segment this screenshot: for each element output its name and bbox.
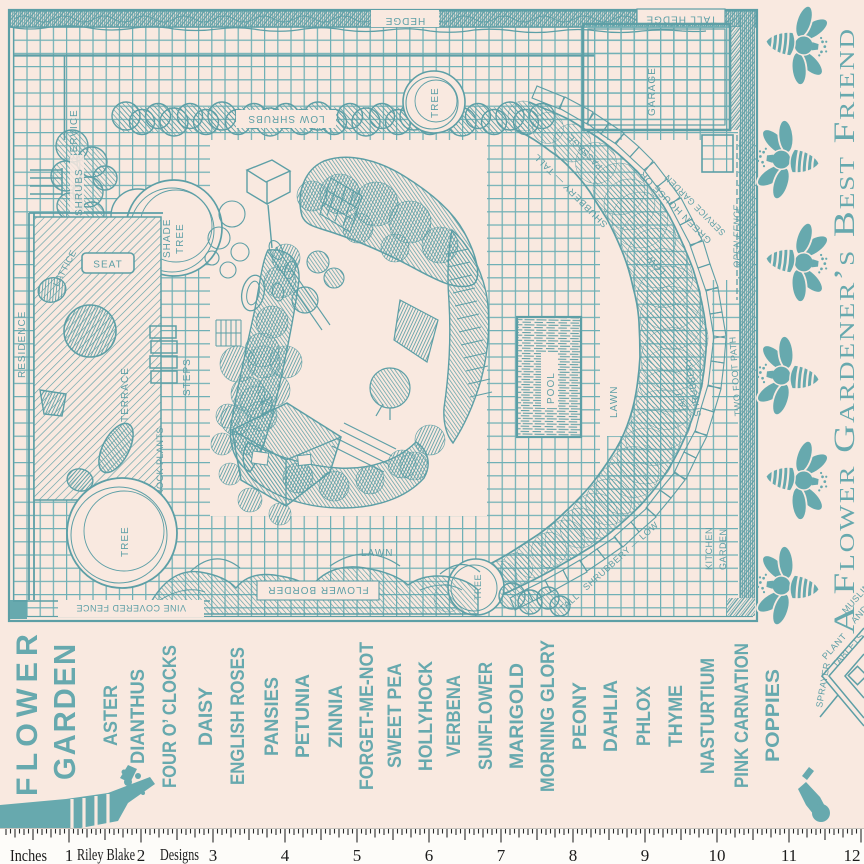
svg-text:SUNFLOWER: SUNFLOWER [476, 662, 497, 770]
svg-text:10: 10 [709, 846, 726, 864]
svg-text:PANSIES: PANSIES [262, 677, 283, 756]
svg-text:7: 7 [497, 846, 506, 864]
svg-text:VINE COVERED FENCE: VINE COVERED FENCE [76, 603, 186, 613]
svg-text:PEONY: PEONY [570, 682, 591, 750]
svg-text:MORNING GLORY: MORNING GLORY [538, 640, 559, 792]
svg-text:DAHLIA: DAHLIA [601, 680, 622, 752]
svg-text:LAWN: LAWN [609, 385, 620, 418]
svg-text:ROCK PLANTS: ROCK PLANTS [155, 427, 165, 496]
svg-text:ENGLISH ROSES: ENGLISH ROSES [228, 647, 249, 785]
svg-text:SEAT: SEAT [93, 260, 122, 271]
svg-text:VERBENA: VERBENA [444, 675, 465, 757]
svg-text:POPPIES: POPPIES [763, 669, 784, 762]
svg-text:8: 8 [569, 846, 578, 864]
svg-text:THYME: THYME [666, 685, 687, 747]
svg-text:FLOWER BORDER: FLOWER BORDER [267, 584, 368, 595]
svg-text:FORGET-ME-NOT: FORGET-ME-NOT [357, 642, 378, 790]
svg-text:1: 1 [65, 846, 74, 864]
svg-text:3: 3 [209, 846, 218, 864]
svg-text:SHRUBS: SHRUBS [74, 168, 85, 216]
svg-text:DAISY: DAISY [196, 687, 217, 746]
svg-text:PHLOX: PHLOX [634, 686, 655, 746]
svg-text:STEPS: STEPS [182, 358, 193, 396]
svg-text:DIANTHUS: DIANTHUS [128, 669, 149, 764]
svg-text:2: 2 [137, 846, 146, 864]
svg-text:4: 4 [281, 846, 290, 864]
svg-text:OPEN FENCE: OPEN FENCE [732, 204, 742, 268]
svg-text:TREE: TREE [430, 87, 441, 118]
svg-text:11: 11 [781, 846, 797, 864]
svg-text:9: 9 [641, 846, 650, 864]
svg-text:A Flower Gardener’s Best Frien: A Flower Gardener’s Best Friend [828, 27, 861, 634]
svg-text:GARAGE: GARAGE [647, 67, 658, 116]
svg-text:POOL: POOL [546, 372, 557, 404]
svg-text:PINK CARNATION: PINK CARNATION [732, 643, 753, 788]
svg-text:TREE: TREE [175, 223, 186, 254]
svg-text:ASTER: ASTER [101, 685, 122, 746]
svg-text:GARDEN: GARDEN [718, 528, 728, 570]
svg-text:PETUNIA: PETUNIA [293, 674, 314, 758]
svg-text:GARDEN: GARDEN [47, 642, 82, 780]
svg-text:HEDGE: HEDGE [385, 15, 426, 26]
svg-text:Designs: Designs [160, 845, 199, 864]
svg-text:ZINNIA: ZINNIA [326, 685, 347, 748]
svg-text:HOLLYHOCK: HOLLYHOCK [416, 661, 437, 771]
svg-text:SHADE: SHADE [162, 219, 173, 258]
svg-text:Inches: Inches [10, 846, 47, 864]
svg-text:TERRACE: TERRACE [120, 367, 131, 422]
svg-text:KITCHEN: KITCHEN [704, 527, 714, 570]
svg-text:FLOWER: FLOWER [11, 628, 44, 796]
svg-text:SWEET PEA: SWEET PEA [385, 663, 406, 768]
svg-text:RESIDENCE: RESIDENCE [17, 311, 28, 378]
svg-text:FOUR O’ CLOCKS: FOUR O’ CLOCKS [160, 645, 181, 788]
svg-text:Riley Blake: Riley Blake [77, 845, 135, 864]
svg-text:NASTURTIUM: NASTURTIUM [698, 658, 719, 774]
svg-text:6: 6 [425, 846, 434, 864]
svg-text:MARIGOLD: MARIGOLD [507, 663, 528, 769]
svg-text:TREE: TREE [120, 526, 131, 557]
svg-text:LOW SHRUBS: LOW SHRUBS [247, 113, 324, 124]
svg-text:12: 12 [844, 846, 861, 864]
svg-text:5: 5 [353, 846, 362, 864]
